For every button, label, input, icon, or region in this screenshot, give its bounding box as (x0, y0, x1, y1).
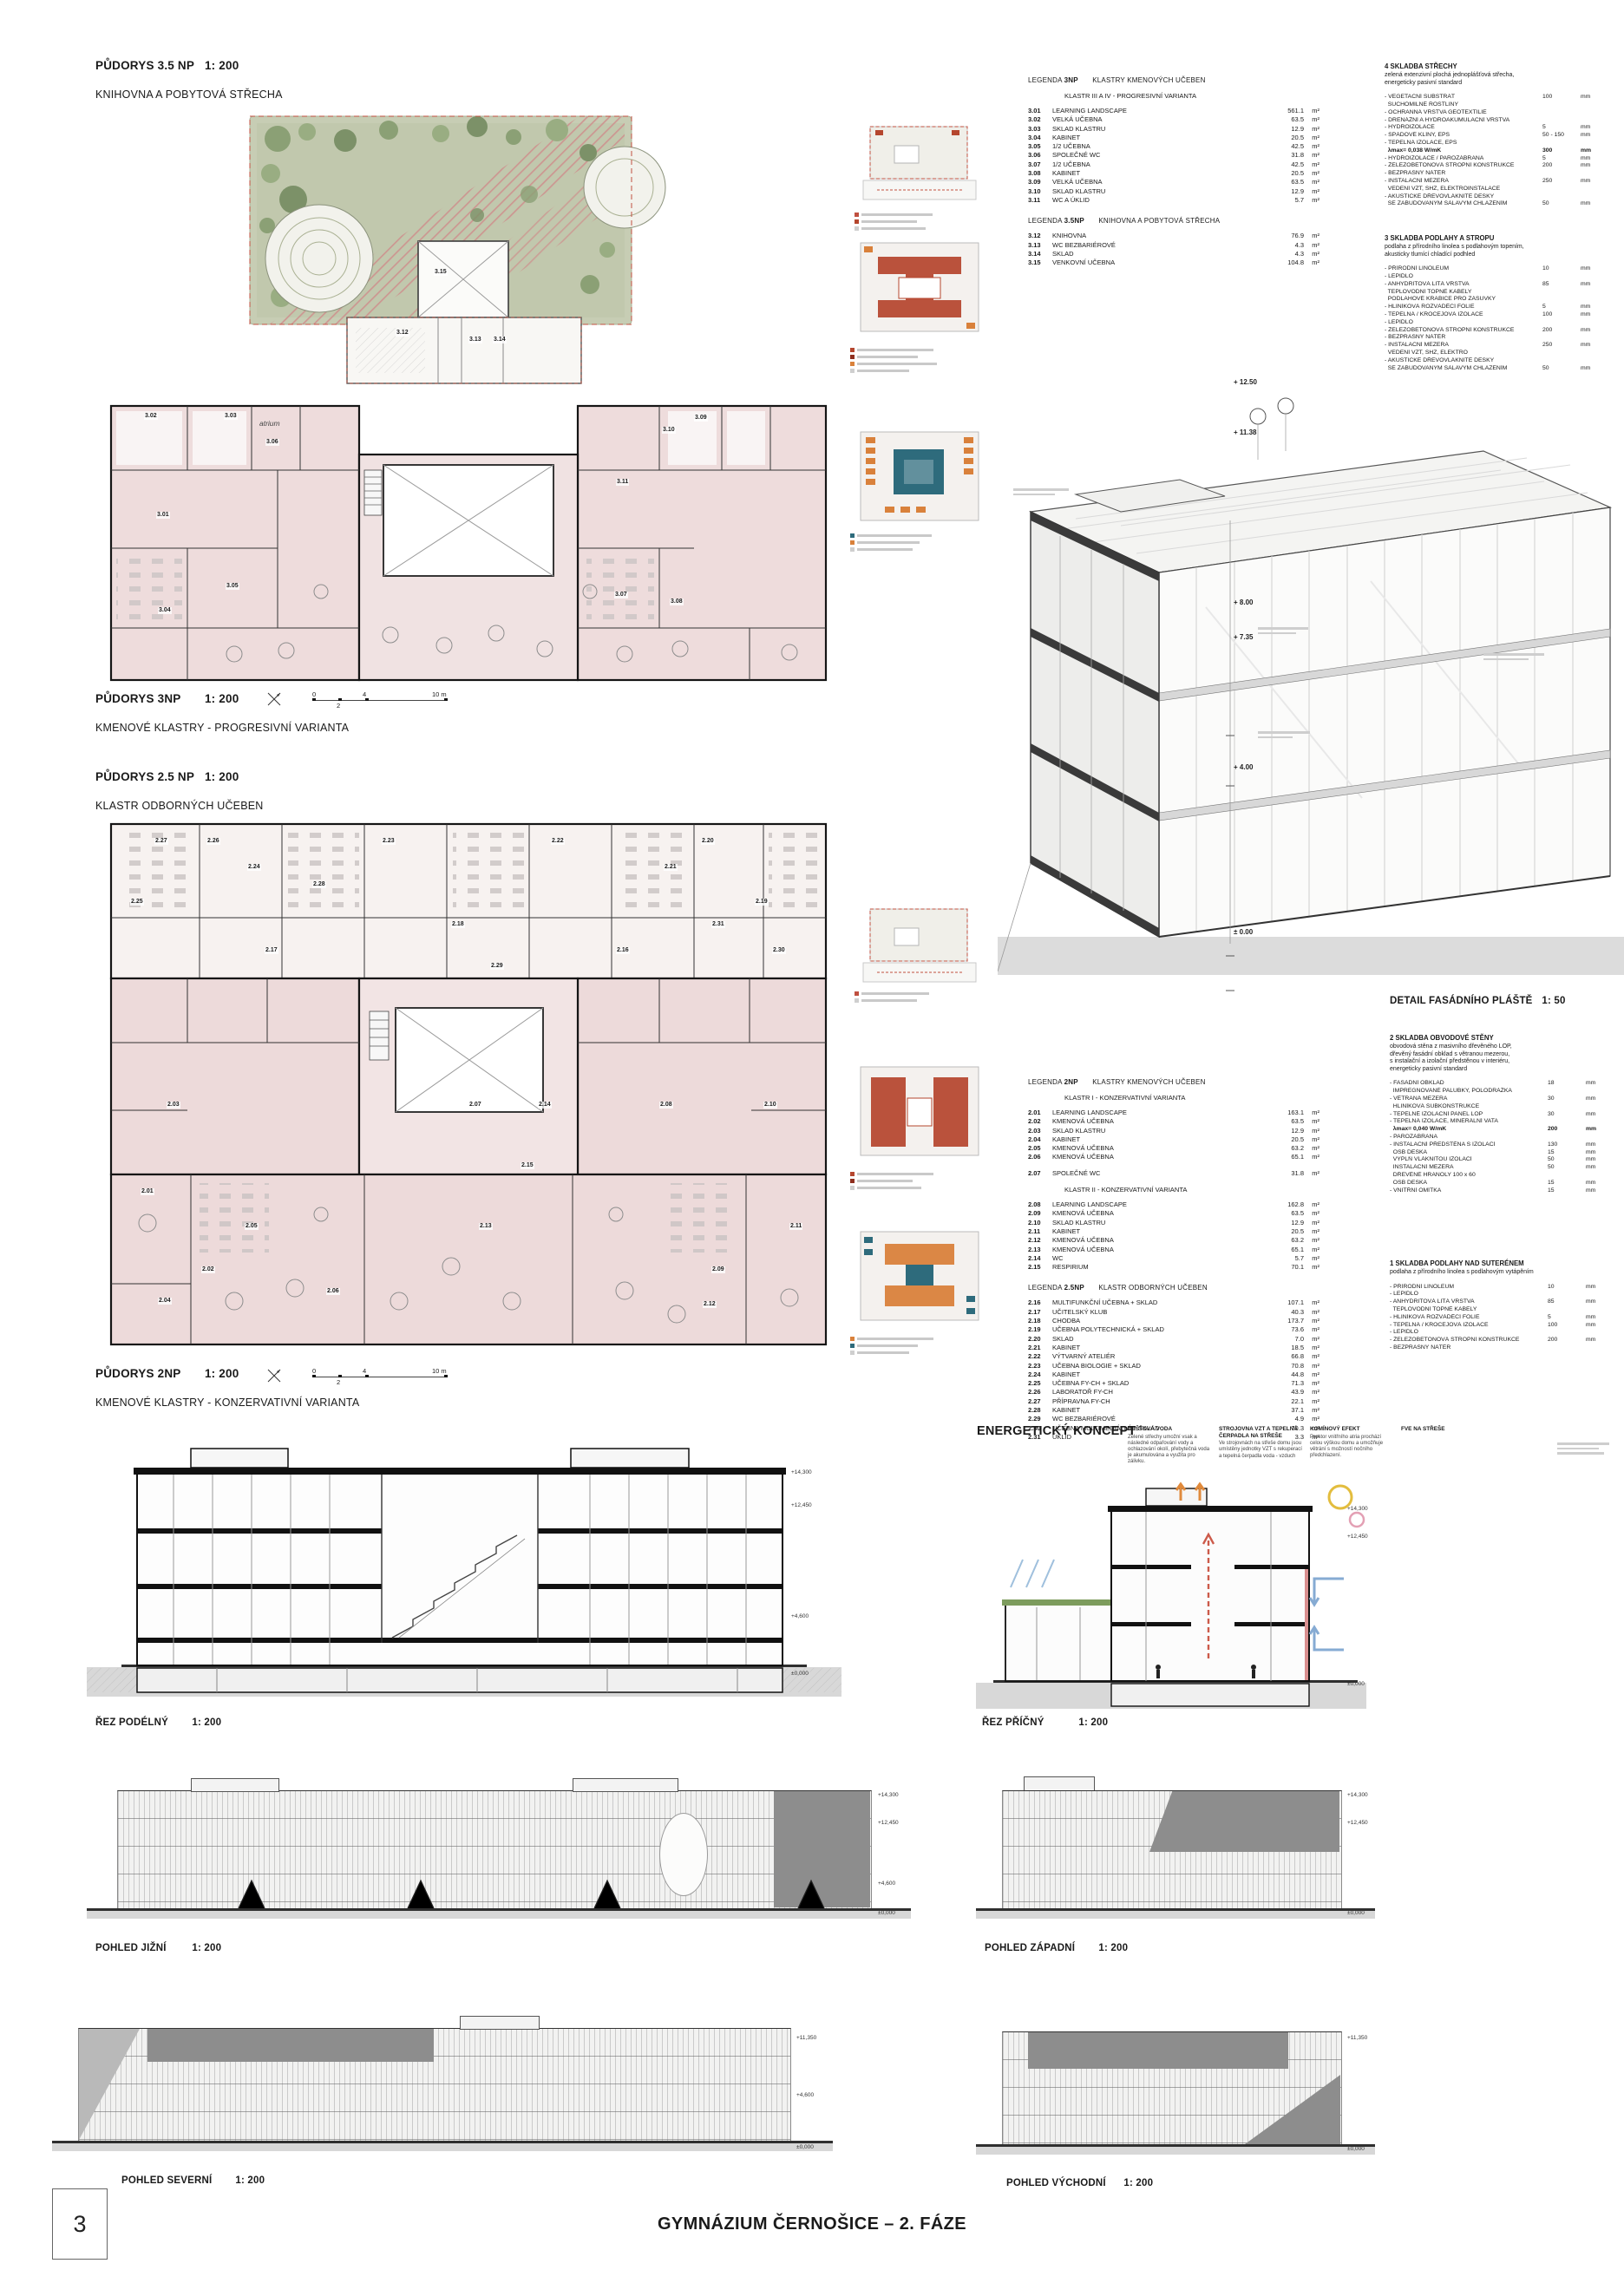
plan-35np-title: PŮDORYS 3.5 NP (95, 59, 201, 72)
legend-3np-rows: 3.01LEARNING LANDSCAPE561.1m²3.02VELKÁ U… (1028, 107, 1319, 205)
legend-2np-cluster1: KLASTR I - KONZERVATIVNÍ VARIANTA (1064, 1094, 1319, 1102)
elevation-east-drawing: +11,350±0,000 (976, 2005, 1375, 2179)
elevation-south-drawing: +14,300+12,450+4,600±0,000 (87, 1771, 911, 1936)
spec-wall-desc: obvodová stěna z masivního dřevěného LOP… (1390, 1043, 1624, 1073)
key-plan-roof-dashed-2 (855, 904, 985, 987)
elevation-east-label: POHLED VÝCHODNÍ 1: 200 (1006, 2178, 1153, 2188)
scale-bar: 0 4 10 m 2 (312, 690, 448, 710)
section-cross-marks: +14,300+12,450±0,000 (1347, 1482, 1399, 1742)
section-long-marks: +14,300+12,450+4,600±0,000 (791, 1452, 843, 1712)
section-long-label: ŘEZ PODÉLNÝ 1: 200 (95, 1717, 221, 1728)
spec-wall: 2 SKLADBA OBVODOVÉ STĚNY obvodová stěna … (1390, 1034, 1624, 1194)
dark-facade-band (1028, 2032, 1288, 2069)
elevation-north-label: POHLED SEVERNÍ 1: 200 (121, 2175, 265, 2186)
plan-2np-scale: 1: 200 (205, 1367, 239, 1380)
spec-wall-lines: - FASÁDNÍ OBKLAD18mm IMPREGNOVANÉ PALUBK… (1390, 1080, 1624, 1194)
legend-3np-cluster: KLASTR III A IV - PROGRESIVNÍ VARIANTA (1064, 92, 1319, 100)
scale-0: 0 (312, 690, 316, 698)
key-plan-conservative-caption (850, 1169, 933, 1193)
detail-title: DETAIL FASÁDNÍHO PLÁŠTĚ (1390, 996, 1539, 1006)
micro-text-placeholder (1483, 651, 1553, 663)
detail-label: DETAIL FASÁDNÍHO PLÁŠTĚ 1: 50 (1390, 996, 1566, 1006)
spec-ceiling: 3 SKLADBA PODLAHY A STROPU podlaha z pří… (1385, 234, 1624, 372)
spec-basement: 1 SKLADBA PODLAHY NAD SUTERÉNEM podlaha … (1390, 1259, 1624, 1352)
spec-ceiling-head: 3 SKLADBA PODLAHY A STROPU (1385, 234, 1624, 242)
elevation-west-marks: +14,300+12,450±0,000 (1347, 1778, 1399, 2038)
plan-3np-drawing: 3.023.033.063.013.053.043.093.103.113.07… (104, 375, 833, 689)
section-cross-label: ŘEZ PŘÍČNÝ 1: 200 (982, 1717, 1108, 1728)
plan-35np-label: PŮDORYS 3.5 NP 1: 200 (95, 59, 239, 72)
plan-2np-drawing: 2.272.262.252.242.282.232.222.212.202.19… (104, 815, 833, 1346)
axon-svg (998, 364, 1624, 994)
plan-2np-label: PŮDORYS 2NP 1: 200 (95, 1367, 239, 1380)
plan-25np-label: PŮDORYS 2.5 NP 1: 200 (95, 770, 239, 783)
spec-roof-lines: - VEGETAČNÍ SUBSTRÁT100mm SUCHOMILNÉ ROS… (1385, 94, 1624, 208)
spec-basement-desc: podlaha z přírodního linolea s podlahový… (1390, 1269, 1624, 1277)
legend-3np-header: LEGENDA 3NP KLASTRY KMENOVÝCH UČEBEN (1028, 76, 1319, 84)
key-plan-progressive-red (850, 236, 989, 340)
section-cross-drawing: +14,300+12,450±0,000 (976, 1475, 1366, 1735)
facade-detail-axon (998, 364, 1624, 994)
legend-2np-cluster2: KLASTR II - KONZERVATIVNÍ VARIANTA (1064, 1186, 1319, 1194)
legend-3np: LEGENDA 3NP KLASTRY KMENOVÝCH UČEBEN KLA… (1028, 76, 1319, 267)
roof-plan-drawing: 3.153.123.133.14 (217, 111, 703, 399)
plan-25np-scale: 1: 200 (205, 770, 239, 783)
rooftop-box (460, 2016, 540, 2030)
key-plan-roof-dashed (855, 121, 985, 205)
green-roof-strip (1002, 1599, 1115, 1606)
plan-35np-scale: 1: 200 (205, 59, 239, 72)
spec-basement-lines: - PŘÍRODNÍ LINOLEUM10mm- LEPIDLO- ANHYDR… (1390, 1284, 1624, 1352)
scale-2: 2 (337, 702, 340, 710)
scale-bar-2: 0 4 10 m 2 (312, 1367, 448, 1386)
plan-3np-scale: 1: 200 (205, 692, 239, 705)
rain-icon (1011, 1560, 1054, 1587)
section-longitudinal-drawing: +14,300+12,450+4,600±0,000 (87, 1442, 841, 1724)
elevation-north-drawing: +11,350+4,600±0,000 (52, 2002, 833, 2175)
key-plan-progressive-caption (850, 345, 937, 376)
plan-3np-subtitle: KMENOVÉ KLASTRY - PROGRESIVNÍ VARIANTA (95, 722, 349, 734)
dark-facade-band (147, 2029, 434, 2062)
plan-35np-subtitle: KNIHOVNA A POBYTOVÁ STŘECHA (95, 88, 283, 101)
plan-3np-title: PŮDORYS 3NP (95, 692, 201, 705)
spec-wall-head: 2 SKLADBA OBVODOVÉ STĚNY (1390, 1034, 1624, 1042)
scale-10: 10 m (432, 690, 447, 698)
spec-basement-head: 1 SKLADBA PODLAHY NAD SUTERÉNEM (1390, 1259, 1624, 1267)
energy-concept-title: ENERGETICKÝ KONCEPT (977, 1424, 1136, 1438)
plan-3np-label: PŮDORYS 3NP 1: 200 (95, 692, 239, 705)
plan-2np-subtitle: KMENOVÉ KLASTRY - KONZERVATIVNÍ VARIANTA (95, 1397, 359, 1409)
micro-text-placeholder (1557, 1440, 1614, 1457)
spec-roof-head: 4 SKLADBA STŘECHY (1385, 62, 1624, 70)
roof-plan-tags: 3.153.123.133.14 (217, 111, 703, 399)
spec-ceiling-desc: podlaha z přírodního linolea s podlahový… (1385, 244, 1624, 258)
energy-notes: DEŠŤOVÁ VODAZelené střechy umožní vsak a… (1128, 1426, 1624, 1466)
key-plan-roof-caption-2 (855, 989, 929, 1005)
legend-25np-rows: 2.16MULTIFUNKČNÍ UČEBNA + SKLAD107.1m²2.… (1028, 1298, 1319, 1442)
spec-roof-desc: zelená extenzivní plochá jednoplášťová s… (1385, 72, 1624, 87)
legend-2np-rows1: 2.01LEARNING LANDSCAPE163.1m²2.02KMENOVÁ… (1028, 1109, 1319, 1178)
legend-25np-header: LEGENDA 2.5NP KLASTR ODBORNÝCH UČEBEN (1028, 1284, 1319, 1292)
elevation-south-marks: +14,300+12,450+4,600±0,000 (878, 1778, 930, 2038)
key-plan-teal-caption (850, 531, 932, 554)
sheet-title: GYMNÁZIUM ČERNOŠICE – 2. FÁZE (0, 2214, 1624, 2234)
axon-level-marks: + 12.50+ 11.38+ 8.00+ 7.35+ 4.00± 0.00 (1234, 371, 1286, 961)
scale-4: 4 (363, 690, 366, 698)
key-plan-orange-caption (850, 1334, 933, 1357)
ventilation-arrows-icon (1310, 1579, 1344, 1650)
key-plan-teal-orange (850, 427, 989, 527)
key-plan-orange-teal (850, 1225, 989, 1329)
legend-2np-rows2: 2.08LEARNING LANDSCAPE162.8m²2.09KMENOVÁ… (1028, 1200, 1319, 1272)
plan-2np-tags: 2.272.262.252.242.282.232.222.212.202.19… (104, 815, 833, 1346)
plan-3np-tags: 3.023.033.063.013.053.043.093.103.113.07… (104, 375, 833, 689)
elevation-south-label: POHLED JIŽNÍ 1: 200 (95, 1943, 221, 1953)
legend-35np-header: LEGENDA 3.5NP KNIHOVNA A POBYTOVÁ STŘECH… (1028, 217, 1319, 225)
elevation-west-drawing: +14,300+12,450±0,000 (976, 1771, 1375, 1936)
north-arrow-icon-2 (265, 1367, 283, 1384)
legend-35np-rows: 3.12KNIHOVNA76.9m²3.13WC BEZBARIÉROVÉ4.3… (1028, 232, 1319, 267)
spec-roof: 4 SKLADBA STŘECHY zelená extenzivní ploc… (1385, 62, 1624, 208)
plan-25np-subtitle: KLASTR ODBORNÝCH UČEBEN (95, 800, 264, 812)
key-plan-conservative-red (850, 1060, 989, 1164)
dark-facade-block (1149, 1791, 1339, 1852)
legend-2np-header: LEGENDA 2NP KLASTRY KMENOVÝCH UČEBEN (1028, 1078, 1319, 1086)
presentation-sheet: PŮDORYS 3.5 NP 1: 200 KNIHOVNA A POBYTOV… (0, 0, 1624, 2296)
plan-25np-title: PŮDORYS 2.5 NP (95, 770, 201, 783)
detail-scale: 1: 50 (1542, 996, 1565, 1006)
elevation-west-label: POHLED ZÁPADNÍ 1: 200 (985, 1943, 1128, 1953)
key-plan-roof-caption (855, 210, 933, 233)
scale-bar-line (312, 700, 448, 701)
north-arrow-icon (265, 690, 283, 708)
spec-ceiling-lines: - PŘÍRODNÍ LINOLEUM10mm- LEPIDLO- ANHYDR… (1385, 265, 1624, 372)
facade-highlight (1305, 1569, 1308, 1680)
legend-2np: LEGENDA 2NP KLASTRY KMENOVÝCH UČEBEN KLA… (1028, 1078, 1319, 1442)
micro-text-placeholder (1013, 486, 1074, 498)
plan-2np-title: PŮDORYS 2NP (95, 1367, 201, 1380)
